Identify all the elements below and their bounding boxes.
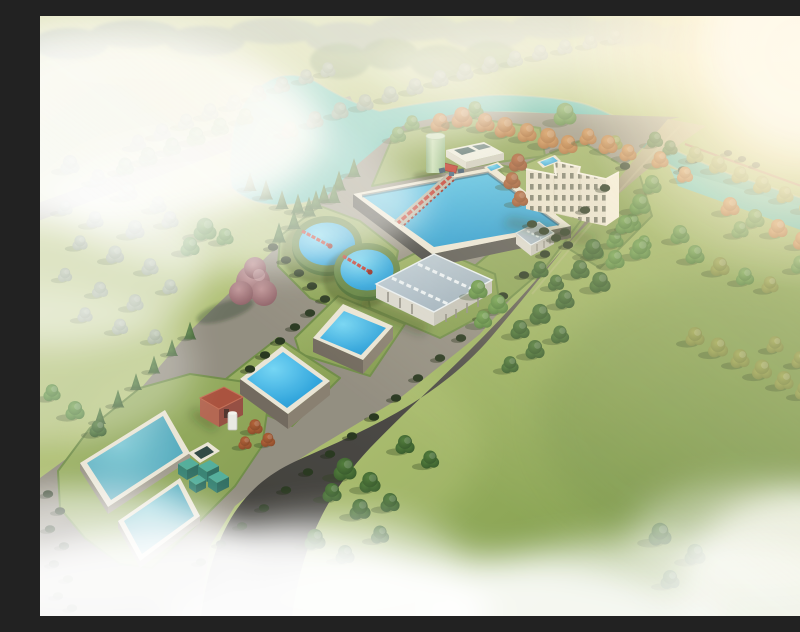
scene-canvas: Aerial 3D rendering of a wastewater trea…	[40, 16, 800, 616]
haze-overlay	[40, 16, 800, 616]
aerial-rendering: Aerial 3D rendering of a wastewater trea…	[40, 16, 800, 616]
